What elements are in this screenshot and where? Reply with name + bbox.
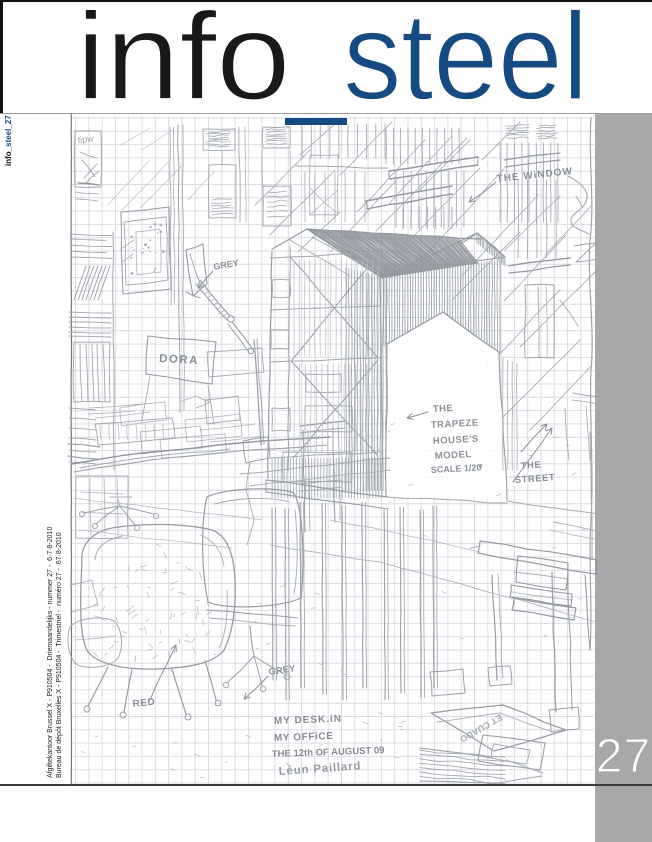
svg-text:MY DESK.iN: MY DESK.iN: [274, 714, 343, 727]
svg-text:ET CUADO: ET CUADO: [458, 712, 504, 744]
svg-text:tipw: tipw: [77, 134, 94, 145]
svg-text:THE WiNDOW: THE WiNDOW: [496, 166, 573, 185]
svg-text:STREET: STREET: [514, 472, 555, 486]
svg-text:MODEL: MODEL: [435, 449, 472, 462]
svg-text:e: e: [479, 463, 483, 470]
svg-text:Léun Paillard: Léun Paillard: [278, 760, 361, 778]
svg-text:GREY: GREY: [268, 663, 297, 678]
svg-text:DORA: DORA: [159, 353, 199, 367]
svg-text:MY OFFiCE: MY OFFiCE: [274, 731, 334, 744]
svg-text:THE: THE: [520, 460, 541, 472]
svg-text:RED: RED: [132, 697, 156, 710]
svg-text:THE: THE: [433, 403, 454, 415]
